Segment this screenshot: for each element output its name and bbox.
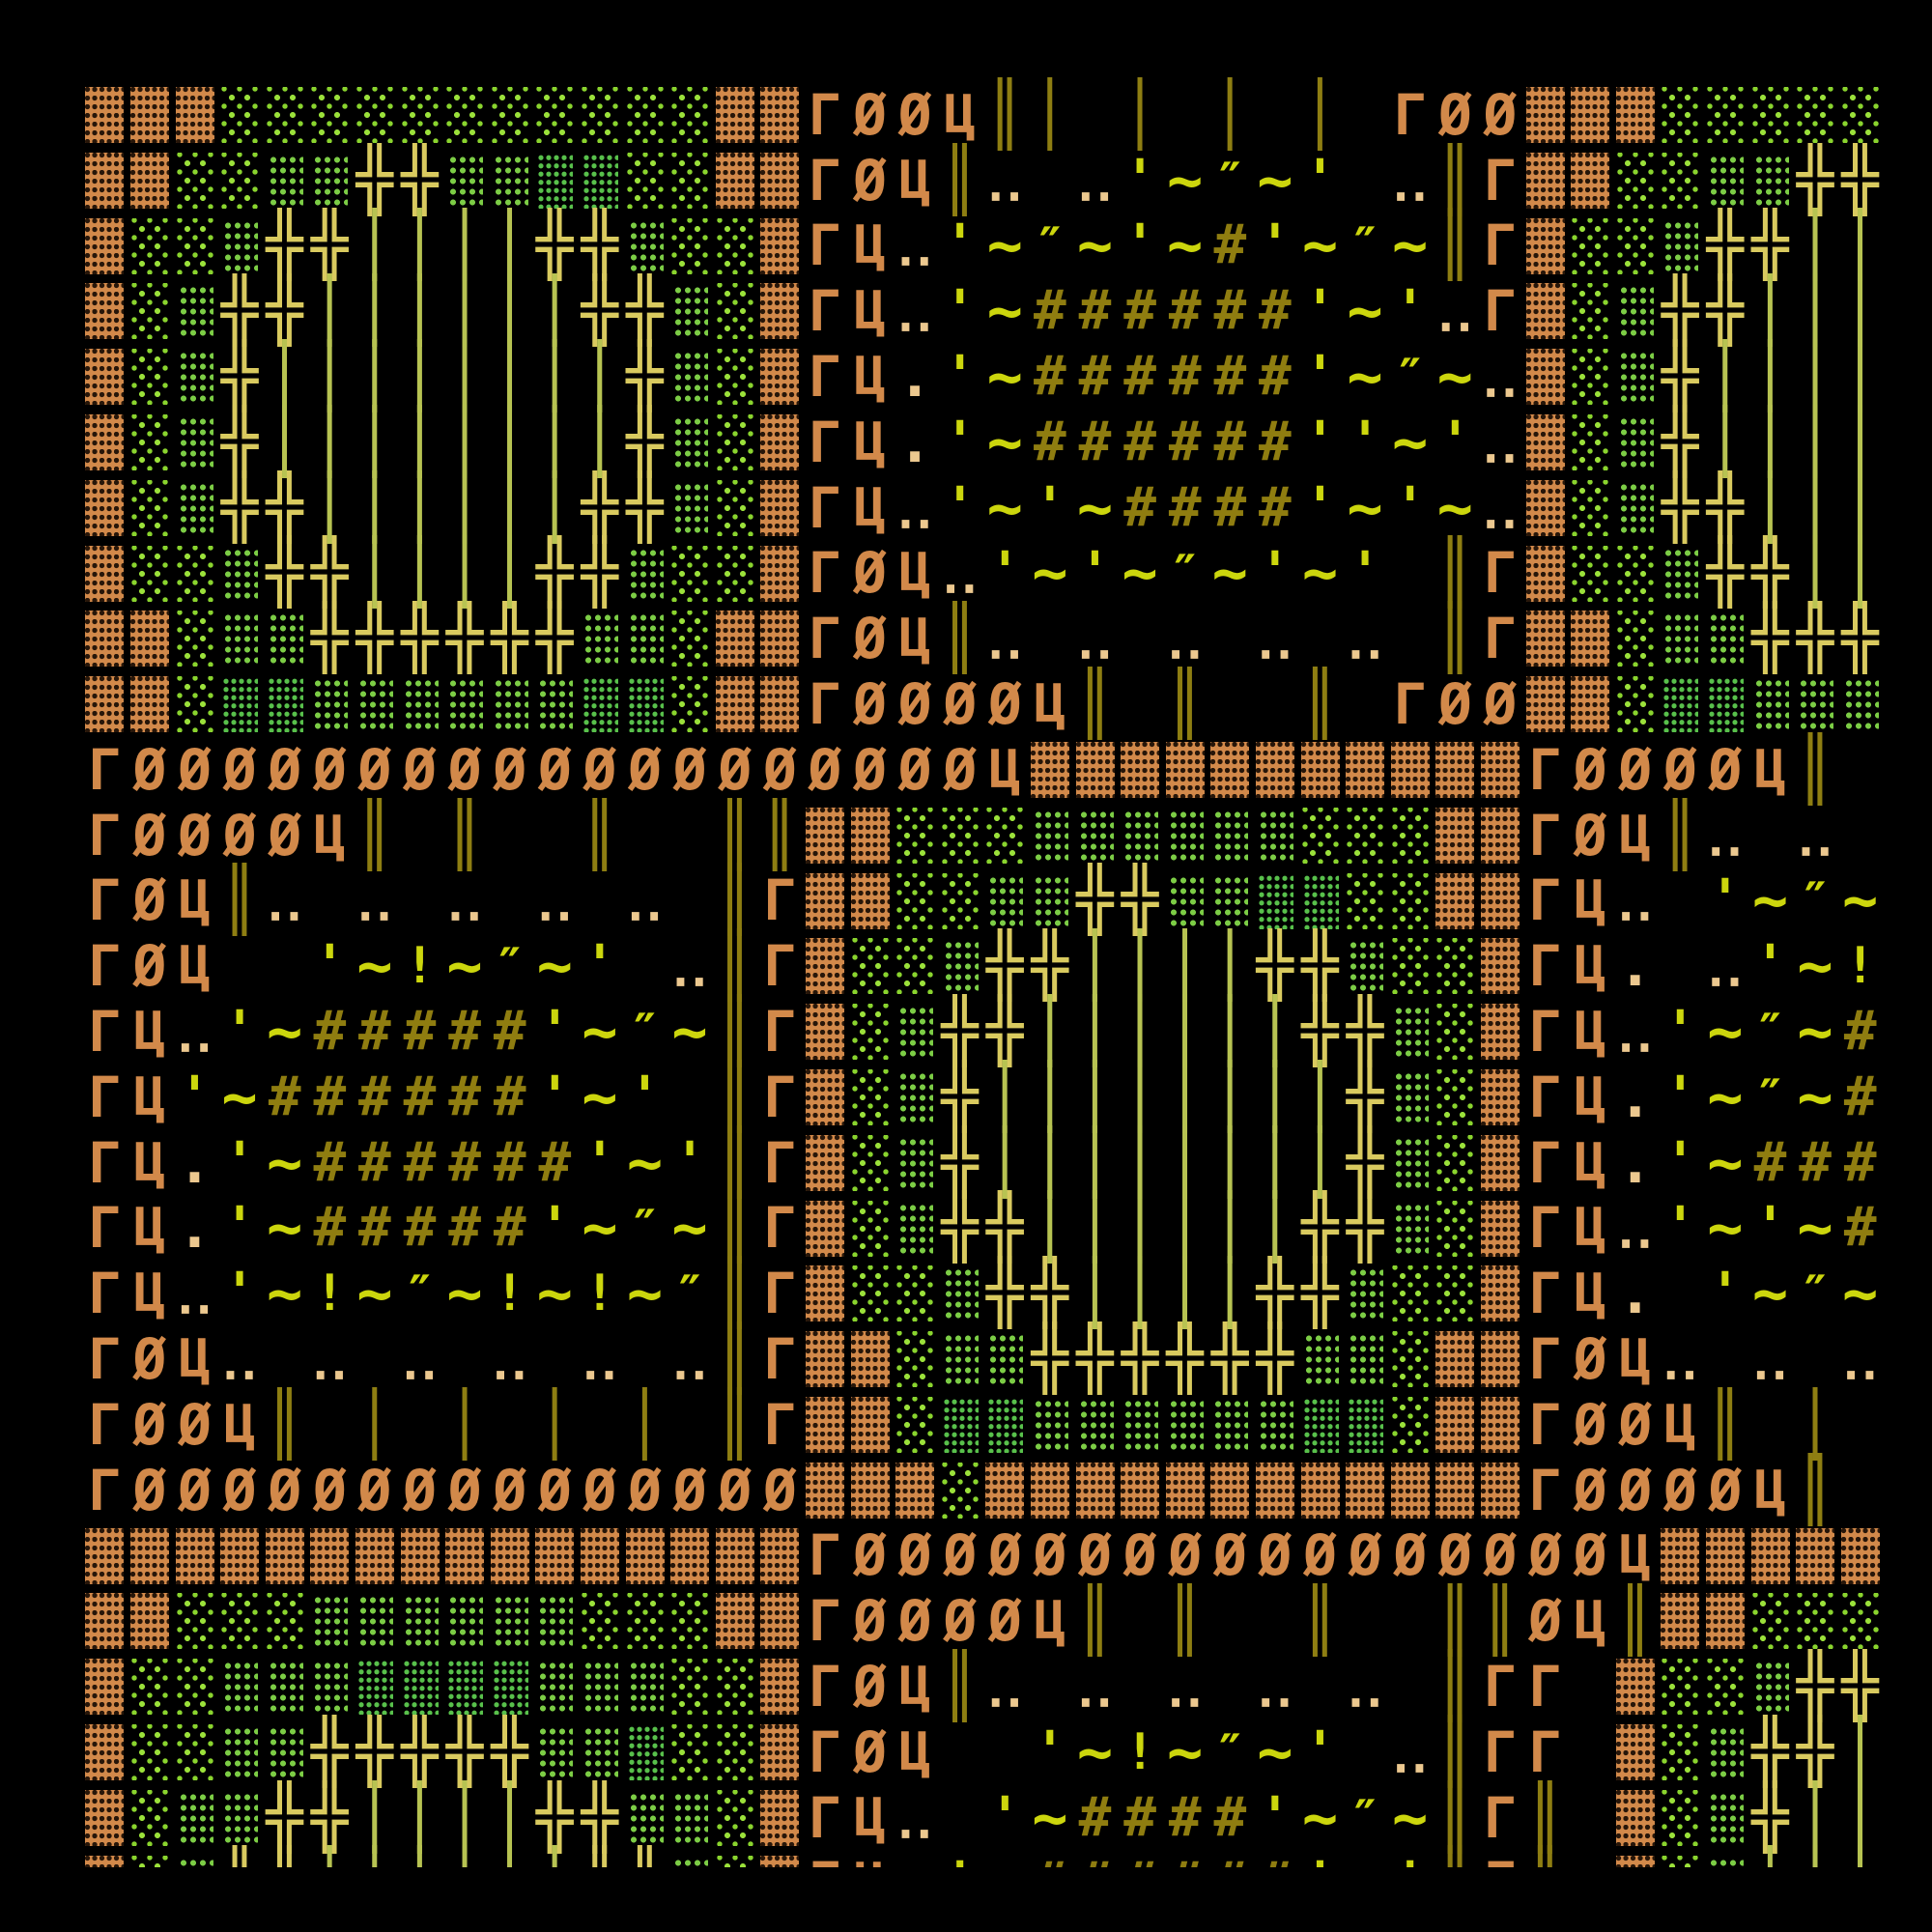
double-cross: ╬ (1253, 933, 1298, 999)
meander-hook-glyph: Ц (1568, 1065, 1613, 1130)
double-cross: ╬ (397, 1719, 442, 1785)
meander-hook-glyph: Ц (1568, 933, 1613, 999)
orange-weave-block (130, 1528, 169, 1584)
orange-weave-block (760, 283, 799, 339)
tick: ' (668, 1130, 713, 1196)
hash: # (353, 1130, 398, 1196)
lime-mid-dot-block (536, 1724, 573, 1780)
double-cross: ╬ (1658, 344, 1703, 410)
lime-mid-dot-block (356, 1593, 393, 1649)
tick: ' (578, 1130, 623, 1196)
lime-mid-dot-block (1122, 1397, 1158, 1453)
double-cross: ╬ (1793, 606, 1838, 671)
tick: ' (982, 541, 1028, 607)
double-bar: ║ (712, 1261, 757, 1326)
tilde: ~ (1072, 213, 1118, 279)
orange-weave-block (85, 1528, 124, 1584)
single-bar-bright: │ (1793, 213, 1838, 279)
meander-hook-glyph: Ц (1658, 1392, 1703, 1458)
double-tick: ″ (487, 933, 532, 999)
meander-corner-glyph: Γ (1522, 1719, 1568, 1785)
double-bar: ║ (712, 1196, 757, 1262)
lime-mid-dot-block (1392, 1201, 1429, 1257)
single-bar-bright: │ (353, 344, 398, 410)
meander-corner-glyph: Γ (1522, 1458, 1568, 1523)
lime-mid-dot-block (221, 1724, 258, 1780)
lime-sparse-dot-block (671, 218, 708, 274)
hash: # (1253, 410, 1298, 475)
hash: # (1162, 344, 1207, 410)
orange-weave-block (85, 283, 124, 339)
tilde: ~ (532, 933, 578, 999)
lime-sparse-dot-block (1752, 87, 1789, 143)
meander-box-glyph: Ø (1612, 1458, 1658, 1523)
dot-pair: ‥ (937, 541, 982, 607)
lime-mid-dot-block (1797, 676, 1833, 732)
double-cross: ╬ (622, 278, 668, 344)
tilde: ~ (217, 1065, 263, 1130)
orange-weave-block (220, 1528, 259, 1584)
meander-box-glyph: Ø (893, 82, 938, 148)
lime-sparse-dot-block (896, 938, 933, 994)
hash: # (353, 1065, 398, 1130)
exclamation-tick: ! (397, 933, 442, 999)
orange-weave-block (760, 349, 799, 405)
lime-mid-dot-block (671, 480, 708, 536)
lime-sparse-dot-block (1392, 1331, 1429, 1387)
orange-weave-block (1435, 742, 1474, 798)
double-tick: ″ (1747, 1065, 1793, 1130)
tick: ' (1387, 475, 1433, 541)
orange-weave-block (1661, 1593, 1699, 1649)
tilde: ~ (1028, 1785, 1073, 1851)
lime-sparse-dot-block (942, 808, 979, 864)
orange-weave-block (1706, 1593, 1745, 1649)
meander-corner-glyph: Γ (82, 999, 128, 1065)
orange-weave-block (1481, 1135, 1520, 1191)
hash: # (1072, 410, 1118, 475)
hash: # (532, 1130, 578, 1196)
double-tick: ″ (1343, 213, 1388, 279)
hash: # (1207, 213, 1253, 279)
orange-weave-block (85, 1659, 124, 1715)
dot-pair: ‥ (1072, 148, 1118, 213)
lime-mid-dot-block (1302, 1331, 1339, 1387)
orange-weave-block (1210, 1463, 1249, 1519)
double-cross: ╬ (487, 606, 532, 671)
hash: # (397, 999, 442, 1065)
lime-mid-dot-block (311, 1593, 348, 1649)
single-bar-bright: │ (1253, 1196, 1298, 1262)
meander-box-glyph: Ø (1162, 1523, 1207, 1589)
lime-sparse-dot-block (582, 87, 618, 143)
meander-hook-glyph: Ц (847, 278, 893, 344)
green-dense-dot-block (446, 1659, 483, 1715)
meander-box-glyph: Ø (1568, 1392, 1613, 1458)
meander-box-glyph: Ø (937, 737, 982, 803)
orange-weave-block (1526, 218, 1565, 274)
hash: # (1072, 278, 1118, 344)
dot-pair: ‥ (1703, 803, 1748, 868)
orange-weave-block (310, 1528, 349, 1584)
lime-sparse-dot-block (1572, 480, 1608, 536)
hash: # (397, 1065, 442, 1130)
meander-box-glyph: Ø (937, 1588, 982, 1654)
hash: # (1837, 999, 1883, 1065)
single-bar-bright: │ (1162, 1261, 1207, 1326)
lime-sparse-dot-block (221, 153, 258, 209)
single-bar-bright: │ (1207, 933, 1253, 999)
meander-corner-glyph: Γ (757, 1130, 803, 1196)
lime-mid-dot-block (1257, 1397, 1293, 1453)
single-bar-bright: │ (353, 410, 398, 475)
lime-sparse-dot-block (671, 1593, 708, 1649)
orange-weave-block (1076, 1463, 1115, 1519)
double-tick: ″ (1207, 148, 1253, 213)
crop-band-right (1883, 0, 1932, 1932)
meander-box-glyph: Ø (803, 737, 848, 803)
lime-sparse-dot-block (177, 218, 213, 274)
meander-corner-glyph: Γ (757, 1261, 803, 1326)
orange-weave-block (1706, 1528, 1745, 1584)
double-cross: ╬ (1207, 1326, 1253, 1392)
meander-corner-glyph: Γ (1478, 148, 1523, 213)
double-tick: ″ (668, 1261, 713, 1326)
double-bar: ║ (217, 868, 263, 934)
single-bar-bright: │ (487, 278, 532, 344)
tick: ' (1387, 278, 1433, 344)
orange-weave-block (85, 87, 124, 143)
orange-weave-block (535, 1528, 574, 1584)
single-bar-olive: │ (532, 1392, 578, 1458)
double-tick: ″ (1162, 541, 1207, 607)
green-dense-dot-block (582, 153, 618, 209)
double-cross: ╬ (262, 475, 307, 541)
lime-sparse-dot-block (536, 87, 573, 143)
double-cross: ╬ (578, 213, 623, 279)
tilde: ~ (262, 1261, 307, 1326)
single-bar-bright: │ (487, 541, 532, 607)
orange-weave-block (1526, 611, 1565, 667)
meander-box-glyph: Ø (262, 1458, 307, 1523)
orange-weave-block (1481, 1331, 1520, 1387)
double-cross: ╬ (217, 278, 263, 344)
orange-weave-block (85, 153, 124, 209)
meander-corner-glyph: Γ (757, 868, 803, 934)
meander-box-glyph: Ø (1433, 82, 1478, 148)
tilde: ~ (1253, 148, 1298, 213)
meander-corner-glyph: Γ (803, 1654, 848, 1719)
dot-pair: ‥ (1162, 1654, 1207, 1719)
lime-mid-dot-block (627, 1659, 664, 1715)
meander-corner-glyph: Γ (1478, 1654, 1523, 1719)
dot-pair: ‥ (1253, 606, 1298, 671)
green-dense-dot-block (402, 1659, 439, 1715)
single-bar-bright: │ (1793, 475, 1838, 541)
single-bar-bright: │ (1028, 1196, 1073, 1262)
orange-weave-block (1526, 676, 1565, 732)
dot: . (172, 1130, 217, 1196)
double-cross: ╬ (217, 410, 263, 475)
single-bar-bright: │ (442, 541, 488, 607)
meander-box-glyph: Ø (217, 803, 263, 868)
hash: # (307, 1065, 353, 1130)
meander-hook-glyph: Ц (893, 1719, 938, 1785)
lime-mid-dot-block (896, 1004, 933, 1060)
orange-weave-block (1435, 1463, 1474, 1519)
double-cross: ╬ (1837, 606, 1883, 671)
meander-box-glyph: Ø (397, 1458, 442, 1523)
orange-weave-block (266, 1528, 304, 1584)
lime-sparse-dot-block (1436, 1135, 1473, 1191)
dot: . (172, 1196, 217, 1262)
single-bar-bright: │ (1837, 213, 1883, 279)
meander-hook-glyph: Ц (982, 737, 1028, 803)
meander-box-glyph: Ø (893, 1523, 938, 1589)
meander-box-glyph: Ø (1522, 1523, 1568, 1589)
hash: # (1162, 278, 1207, 344)
tilde: ~ (982, 410, 1028, 475)
single-bar-bright: │ (1162, 1196, 1207, 1262)
double-cross: ╬ (1072, 1326, 1118, 1392)
double-bar: ║ (712, 1326, 757, 1392)
single-bar-bright: │ (397, 410, 442, 475)
tick: ' (217, 1196, 263, 1262)
orange-weave-block (851, 1397, 890, 1453)
single-bar-bright: │ (397, 278, 442, 344)
double-tick: ″ (1387, 344, 1433, 410)
meander-corner-glyph: Γ (1522, 868, 1568, 934)
double-bar: ║ (1433, 1785, 1478, 1851)
meander-box-glyph: Ø (893, 737, 938, 803)
single-bar-bright: │ (578, 410, 623, 475)
hash: # (307, 999, 353, 1065)
meander-hook-glyph: Ц (1612, 803, 1658, 868)
orange-weave-block (85, 1593, 124, 1649)
double-cross: ╬ (1793, 1719, 1838, 1785)
tick: ' (532, 1065, 578, 1130)
double-bar: ║ (1793, 737, 1838, 803)
lime-sparse-dot-block (131, 480, 168, 536)
lime-mid-dot-block (177, 349, 213, 405)
meander-box-glyph: Ø (1612, 737, 1658, 803)
meander-corner-glyph: Γ (803, 1523, 848, 1589)
double-cross: ╬ (622, 475, 668, 541)
lime-mid-dot-block (1662, 218, 1698, 274)
single-bar-bright: │ (532, 278, 578, 344)
lime-sparse-dot-block (1752, 1593, 1789, 1649)
meander-box-glyph: Ø (847, 1719, 893, 1785)
tick: ' (937, 475, 982, 541)
tick: ' (1028, 1719, 1073, 1785)
green-dense-dot-block (582, 676, 618, 732)
double-bar: ║ (757, 803, 803, 868)
orange-weave-block (760, 1724, 799, 1780)
orange-weave-block (581, 1528, 619, 1584)
hash: # (1118, 278, 1163, 344)
orange-weave-block (1435, 873, 1474, 929)
lime-mid-dot-block (896, 1069, 933, 1125)
lime-mid-dot-block (1032, 1397, 1068, 1453)
orange-weave-block (85, 611, 124, 667)
orange-weave-block (806, 1397, 844, 1453)
lime-sparse-dot-block (671, 611, 708, 667)
hash: # (1207, 475, 1253, 541)
orange-weave-block (1435, 1331, 1474, 1387)
meander-hook-glyph: Ц (1028, 671, 1073, 737)
tick: ' (1658, 1065, 1703, 1130)
hash: # (1207, 278, 1253, 344)
double-tick: ″ (1747, 999, 1793, 1065)
lime-sparse-dot-block (627, 1593, 664, 1649)
double-cross: ╬ (307, 213, 353, 279)
lime-mid-dot-block (1122, 808, 1158, 864)
orange-weave-block (1031, 742, 1069, 798)
orange-weave-block (851, 1331, 890, 1387)
orange-weave-block (1526, 349, 1565, 405)
meander-hook-glyph: Ц (128, 1196, 173, 1262)
orange-weave-block (760, 1790, 799, 1846)
tilde: ~ (442, 1261, 488, 1326)
lime-sparse-dot-block (1347, 873, 1383, 929)
green-dense-dot-block (492, 1659, 528, 1715)
double-cross: ╬ (487, 1719, 532, 1785)
tilde: ~ (1207, 541, 1253, 607)
meander-box-glyph: Ø (937, 671, 982, 737)
double-cross: ╬ (578, 475, 623, 541)
double-cross: ╬ (442, 1719, 488, 1785)
lime-sparse-dot-block (1617, 611, 1654, 667)
orange-weave-block (130, 87, 169, 143)
single-bar-bright: │ (1162, 1130, 1207, 1196)
meander-box-glyph: Ø (847, 737, 893, 803)
dot-pair: ‥ (1343, 606, 1388, 671)
tick: ' (1118, 148, 1163, 213)
lime-sparse-dot-block (1436, 1201, 1473, 1257)
hash: # (1837, 1196, 1883, 1262)
orange-weave-block (1526, 546, 1565, 602)
meander-box-glyph: Ø (128, 1326, 173, 1392)
hash: # (353, 1196, 398, 1262)
double-bar: ║ (442, 803, 488, 868)
hash: # (307, 1196, 353, 1262)
tilde: ~ (1072, 475, 1118, 541)
lime-mid-dot-block (267, 153, 303, 209)
meander-box-glyph: Ø (847, 82, 893, 148)
single-bar-bright: │ (353, 1785, 398, 1851)
single-bar-bright: │ (1028, 999, 1073, 1065)
meander-corner-glyph: Γ (82, 737, 128, 803)
tilde: ~ (1028, 541, 1073, 607)
lime-mid-dot-block (492, 153, 528, 209)
meander-box-glyph: Ø (1297, 1523, 1343, 1589)
hash: # (1207, 344, 1253, 410)
meander-corner-glyph: Γ (1478, 278, 1523, 344)
orange-weave-block (1481, 1201, 1520, 1257)
single-bar-bright: │ (578, 344, 623, 410)
lime-mid-dot-block (536, 1593, 573, 1649)
dot-pair: ‥ (1433, 278, 1478, 344)
meander-box-glyph: Ø (1118, 1523, 1163, 1589)
single-bar-bright: │ (1297, 1130, 1343, 1196)
lime-mid-dot-block (1707, 1790, 1744, 1846)
tick: ' (937, 278, 982, 344)
meander-box-glyph: Ø (1387, 1523, 1433, 1589)
lime-mid-dot-block (671, 1790, 708, 1846)
meander-box-glyph: Ø (982, 1523, 1028, 1589)
double-cross: ╬ (622, 410, 668, 475)
tilde: ~ (1343, 344, 1388, 410)
tick: ' (532, 1196, 578, 1262)
hash: # (1253, 475, 1298, 541)
tick: ' (1253, 1785, 1298, 1851)
tilde: ~ (1703, 1065, 1748, 1130)
single-bar-olive: │ (1028, 82, 1073, 148)
single-bar-bright: │ (487, 344, 532, 410)
lime-mid-dot-block (1167, 1397, 1204, 1453)
green-dense-dot-block (1257, 873, 1293, 929)
lime-sparse-dot-block (177, 611, 213, 667)
single-bar-bright: │ (1837, 475, 1883, 541)
double-bar: ║ (1162, 1588, 1207, 1654)
tick: ' (1747, 933, 1793, 999)
meander-box-glyph: Ø (128, 737, 173, 803)
single-bar-bright: │ (1072, 1196, 1118, 1262)
dot-pair: ‥ (307, 1326, 353, 1392)
dot-pair: ‥ (893, 278, 938, 344)
orange-weave-block (1481, 742, 1520, 798)
double-cross: ╬ (1297, 1196, 1343, 1262)
meander-box-glyph: Ø (128, 1458, 173, 1523)
dot-pair: ‥ (262, 868, 307, 934)
orange-weave-block (670, 1528, 709, 1584)
tick: ' (172, 1065, 217, 1130)
single-bar-bright: │ (1703, 344, 1748, 410)
lime-mid-dot-block (492, 676, 528, 732)
orange-weave-block (1256, 742, 1294, 798)
tick: ' (1072, 541, 1118, 607)
double-bar: ║ (1433, 541, 1478, 607)
tick: ' (307, 933, 353, 999)
lime-mid-dot-block (1617, 349, 1654, 405)
lime-sparse-dot-block (1392, 873, 1429, 929)
meander-hook-glyph: Ц (1568, 868, 1613, 934)
hash: # (1207, 1785, 1253, 1851)
double-bar: ║ (1612, 1588, 1658, 1654)
lime-sparse-dot-block (221, 1593, 258, 1649)
single-bar-bright: │ (1207, 1065, 1253, 1130)
hash: # (1118, 344, 1163, 410)
orange-weave-block (626, 1528, 665, 1584)
single-bar-bright: │ (442, 344, 488, 410)
orange-weave-block (1526, 87, 1565, 143)
meander-corner-glyph: Γ (82, 1458, 128, 1523)
single-bar-olive: │ (442, 1392, 488, 1458)
single-bar-bright: │ (487, 475, 532, 541)
meander-corner-glyph: Γ (1478, 1785, 1523, 1851)
meander-box-glyph: Ø (217, 1458, 263, 1523)
tilde: ~ (668, 999, 713, 1065)
meander-box-glyph: Ø (128, 1392, 173, 1458)
meander-box-glyph: Ø (172, 803, 217, 868)
meander-hook-glyph: Ц (172, 868, 217, 934)
single-bar-bright: │ (1072, 1130, 1118, 1196)
tilde: ~ (1387, 213, 1433, 279)
orange-weave-block (1571, 87, 1609, 143)
lime-sparse-dot-block (1617, 546, 1654, 602)
lime-mid-dot-block (1211, 1397, 1248, 1453)
exclamation-tick: ! (578, 1261, 623, 1326)
